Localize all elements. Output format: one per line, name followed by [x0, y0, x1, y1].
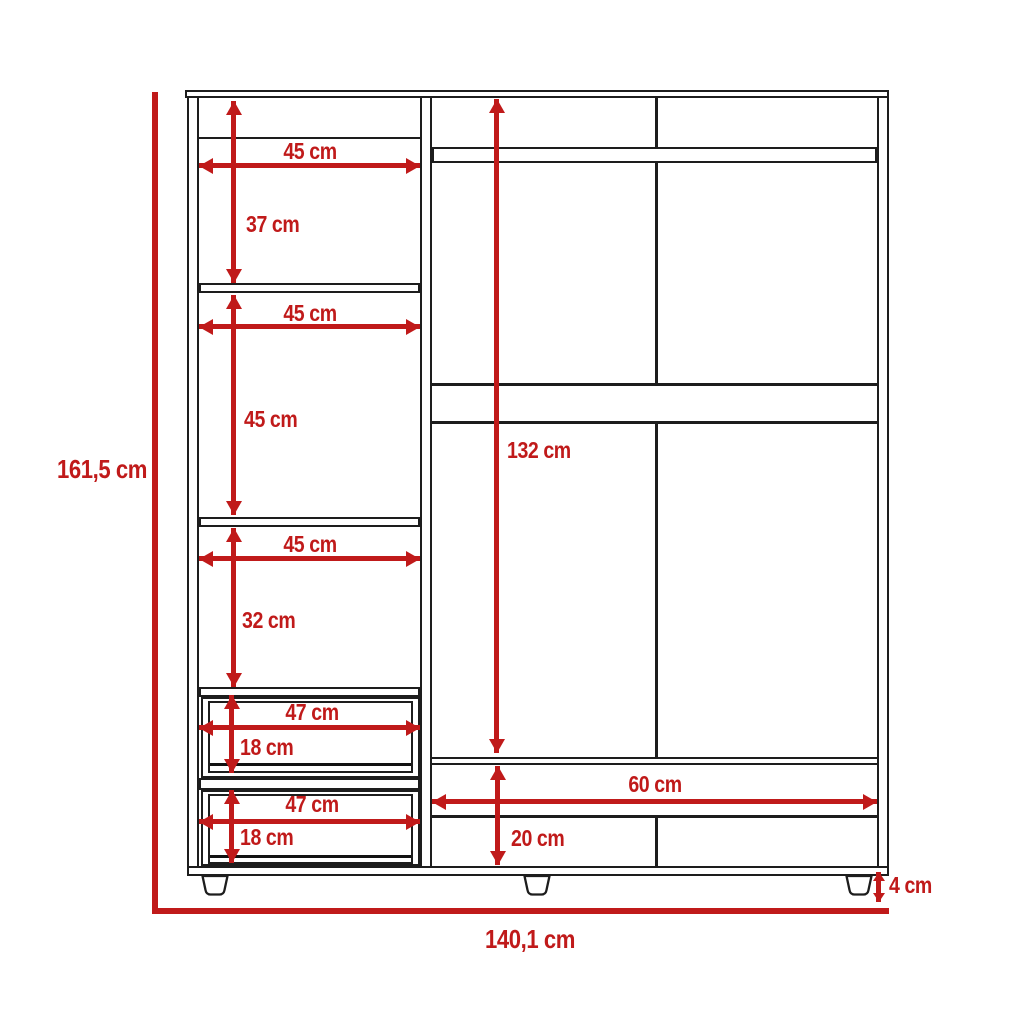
dim-arrow-lower-shelf-height	[231, 528, 236, 687]
dim-label-middle-shelf-width: 45 cm	[238, 302, 383, 325]
dim-label-lower-shelf-width: 45 cm	[238, 533, 383, 556]
center-foot	[523, 875, 551, 897]
left-foot	[201, 875, 229, 897]
dim-label-overall-height: 161,5 cm	[56, 456, 147, 482]
dim-label-top-shelf-height: 37 cm	[246, 213, 299, 236]
left-side-panel	[187, 96, 199, 868]
dim-arrow-foot-height	[876, 872, 881, 902]
dim-label-drawer-2-width: 47 cm	[240, 793, 385, 816]
dim-arrow-interior-height	[494, 99, 499, 753]
wardrobe-dimension-diagram: 161,5 cm 140,1 cm 45 cm 37 cm 45 cm 45 c…	[0, 0, 1024, 1024]
dim-arrow-bottom-compartment-height	[495, 766, 500, 865]
dim-label-middle-shelf-height: 45 cm	[244, 408, 297, 431]
dim-arrow-top-shelf-height	[231, 101, 236, 283]
dim-arrow-drawer-1-height	[229, 695, 234, 773]
dim-arrow-drawer-2-height	[229, 790, 234, 863]
bottom-shelf-top-line	[432, 757, 877, 759]
dim-label-drawer-1-height: 18 cm	[240, 736, 293, 759]
right-section-divider-top	[655, 96, 658, 383]
dim-label-foot-height: 4 cm	[889, 874, 932, 897]
wardrobe-top-panel	[185, 90, 889, 98]
right-side-panel	[877, 96, 889, 868]
dim-label-bottom-compartment-height: 20 cm	[511, 827, 564, 850]
drawer-2-handle	[210, 855, 411, 858]
dim-label-bottom-compartment-width: 60 cm	[591, 773, 719, 796]
dim-label-drawer-1-width: 47 cm	[240, 701, 385, 724]
overall-height-dim-line	[152, 92, 158, 914]
dim-label-overall-width: 140,1 cm	[466, 926, 594, 952]
drawer-divider	[199, 778, 420, 790]
right-foot	[845, 875, 873, 897]
shelf-2	[199, 517, 420, 527]
dim-label-top-shelf-width: 45 cm	[238, 140, 383, 163]
dim-label-lower-shelf-height: 32 cm	[242, 609, 295, 632]
overall-width-dim-line	[152, 908, 889, 914]
drawer-1-handle	[210, 763, 411, 766]
right-section-divider-middle	[655, 423, 658, 757]
right-section-divider-bottom	[655, 815, 658, 866]
center-divider-panel	[420, 96, 432, 868]
dim-label-drawer-2-height: 18 cm	[240, 826, 293, 849]
bottom-shelf-bottom-line	[432, 763, 877, 765]
shelf-1	[199, 283, 420, 293]
dim-label-interior-height: 132 cm	[507, 439, 571, 462]
dim-arrow-middle-shelf-height	[231, 295, 236, 515]
